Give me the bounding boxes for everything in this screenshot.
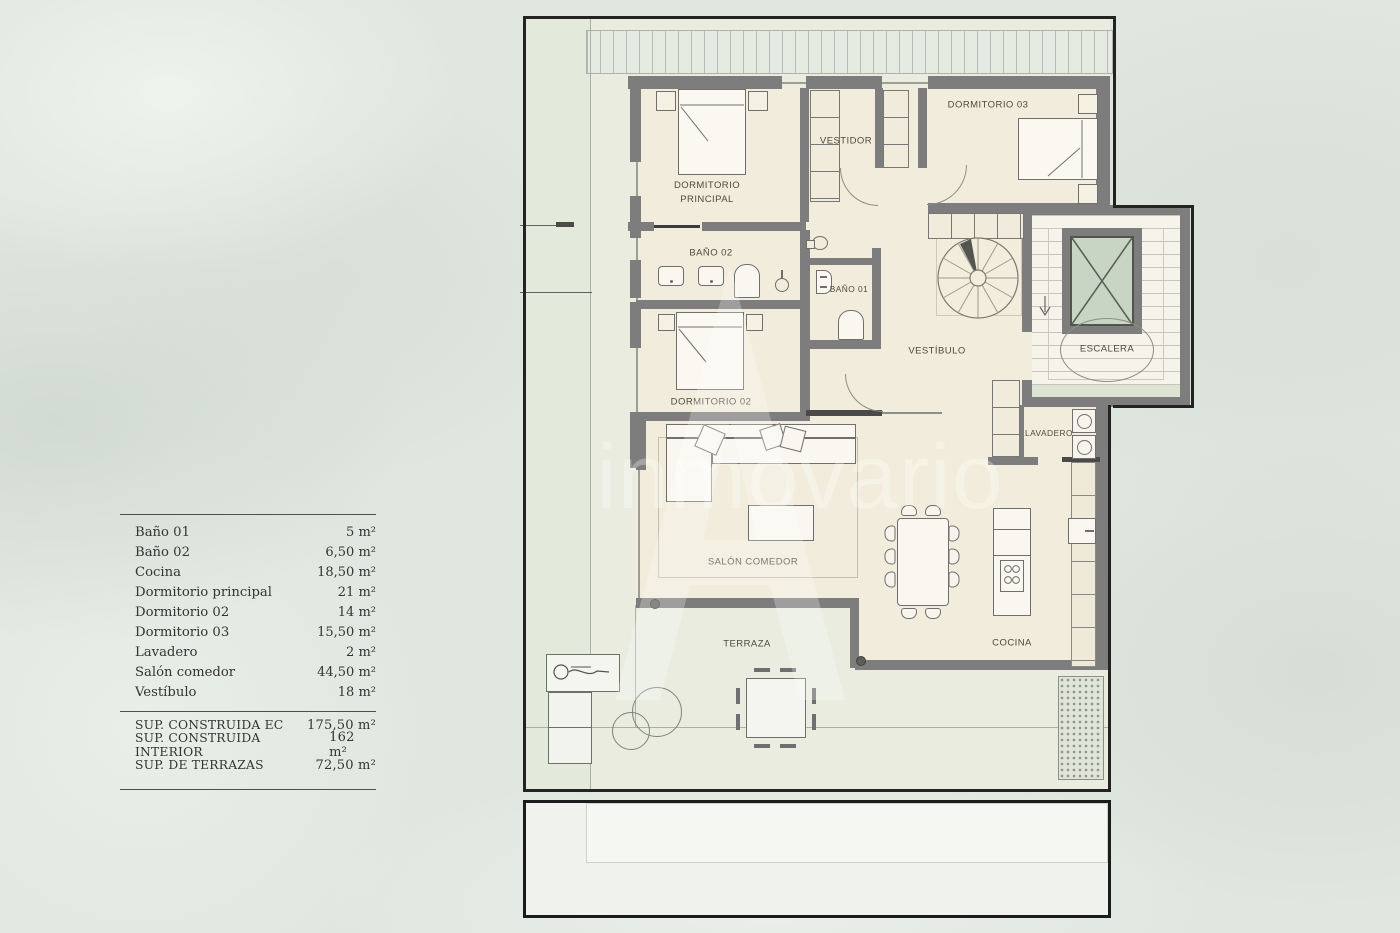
legend-row: Baño 026,50 m² xyxy=(120,542,376,562)
room-area: 18,50 m² xyxy=(317,565,376,580)
plot-border xyxy=(1113,405,1194,408)
room-area: 18 m² xyxy=(338,685,376,700)
wall-segment xyxy=(636,300,808,309)
room-label-dormitorio-02: DORMITORIO 02 xyxy=(671,397,752,408)
kitchen-cabinets xyxy=(1071,462,1096,667)
plot-border xyxy=(523,16,526,792)
column-dot xyxy=(650,599,660,609)
room-name: Cocina xyxy=(135,565,181,580)
legend-row: Lavadero2 m² xyxy=(120,642,376,662)
room-label-vestibulo: VESTÍBULO xyxy=(908,346,965,357)
room-label-dormitorio-principal: DORMITORIOPRINCIPAL xyxy=(674,179,740,207)
window-glazing xyxy=(882,412,942,414)
page: Baño 015 m² Baño 026,50 m² Cocina18,50 m… xyxy=(0,0,1400,933)
room-name: Dormitorio principal xyxy=(135,585,272,600)
room-area: 5 m² xyxy=(346,525,376,540)
wall-segment xyxy=(918,88,927,168)
shower-icon xyxy=(838,310,864,340)
door-opening xyxy=(1022,332,1032,380)
coffee-table-icon xyxy=(748,505,814,541)
lower-plot-block xyxy=(523,800,1111,918)
planter-icon xyxy=(1058,676,1104,780)
bed-icon xyxy=(1018,118,1098,180)
legend-row: Vestíbulo18 m² xyxy=(120,682,376,702)
room-area: 2 m² xyxy=(346,645,376,660)
lower-plot-inner xyxy=(586,803,1108,863)
bed-icon xyxy=(676,312,744,390)
room-area: 14 m² xyxy=(338,605,376,620)
pergola-slats xyxy=(586,30,1113,74)
legend-row: Dormitorio 0315,50 m² xyxy=(120,622,376,642)
wall-segment xyxy=(988,457,1038,465)
room-name: Baño 02 xyxy=(135,545,190,560)
room-label-bano-01: BAÑO 01 xyxy=(830,284,869,294)
plot-border xyxy=(1113,16,1116,208)
room-name: Salón comedor xyxy=(135,665,235,680)
label-line: PRINCIPAL xyxy=(680,194,734,205)
nightstand-icon xyxy=(748,91,768,111)
total-area: 72,50 m² xyxy=(316,758,377,773)
dining-table-icon xyxy=(897,518,949,606)
window-leader-line xyxy=(520,292,592,293)
washer-icon xyxy=(1072,435,1096,459)
nightstand-icon xyxy=(658,314,675,331)
total-area: 162 m² xyxy=(329,730,376,760)
wall-segment xyxy=(875,88,883,168)
room-label-vestidor: VESTIDOR xyxy=(820,136,872,147)
chair-icon xyxy=(901,505,917,516)
wall-pier xyxy=(636,420,646,470)
label-line: DORMITORIO xyxy=(674,180,740,191)
legend-total-row: SUP. DE TERRAZAS72,50 m² xyxy=(120,755,376,775)
room-label-terraza: TERRAZA xyxy=(723,639,771,650)
outdoor-chair-icon xyxy=(812,688,816,704)
elevator-icon xyxy=(1070,236,1134,326)
total-name: SUP. CONSTRUIDA EC xyxy=(135,718,283,732)
wall-pier xyxy=(630,86,641,162)
wall-segment xyxy=(628,76,782,89)
wall-segment xyxy=(636,598,858,608)
room-label-escalera: ESCALERA xyxy=(1080,344,1134,355)
wall-segment xyxy=(800,88,809,222)
plant-icon xyxy=(612,712,650,750)
bed-icon xyxy=(678,89,746,175)
floor-plan: DORMITORIOPRINCIPAL VESTIDOR DORMITORIO … xyxy=(0,0,1400,933)
room-area: 21 m² xyxy=(338,585,376,600)
room-label-cocina: COCINA xyxy=(992,638,1032,649)
plot-border xyxy=(1108,405,1111,792)
room-area: 15,50 m² xyxy=(317,625,376,640)
outdoor-chair-icon xyxy=(754,744,770,748)
legend-row: Baño 015 m² xyxy=(120,522,376,542)
room-name: Vestíbulo xyxy=(135,685,197,700)
wall-segment xyxy=(800,230,810,412)
shower-icon xyxy=(734,264,760,298)
plot-border xyxy=(523,789,1111,792)
room-label-lavadero: LAVADERO xyxy=(1025,428,1073,438)
wall-segment xyxy=(806,76,882,89)
legend-row: Salón comedor44,50 m² xyxy=(120,662,376,682)
wall-segment xyxy=(802,340,881,349)
room-name: Lavadero xyxy=(135,645,197,660)
legend-row: Cocina18,50 m² xyxy=(120,562,376,582)
nightstand-icon xyxy=(746,314,763,331)
chair-icon xyxy=(885,572,896,588)
pedestal-sink-icon xyxy=(775,278,789,292)
room-label-bano-02: BAÑO 02 xyxy=(689,248,732,259)
total-name: SUP. DE TERRAZAS xyxy=(135,758,264,772)
wall-segment xyxy=(702,222,806,231)
lounge-chair-icon xyxy=(546,654,620,692)
faucet-icon xyxy=(781,270,783,279)
room-area: 44,50 m² xyxy=(317,665,376,680)
room-name: Dormitorio 02 xyxy=(135,605,229,620)
nightstand-icon xyxy=(656,91,676,111)
room-area: 6,50 m² xyxy=(325,545,376,560)
wall-segment xyxy=(1096,405,1108,667)
outdoor-chair-icon xyxy=(754,668,770,672)
wardrobe-cells xyxy=(883,90,909,168)
legend-divider xyxy=(120,711,376,712)
terrace-mat-icon xyxy=(548,692,592,764)
outdoor-chair-icon xyxy=(736,688,740,704)
legend-row: Dormitorio 0214 m² xyxy=(120,602,376,622)
chair-icon xyxy=(885,549,896,565)
column-dot xyxy=(856,656,866,666)
plot-border xyxy=(523,16,1116,19)
sliding-door xyxy=(654,225,700,228)
outdoor-chair-icon xyxy=(780,744,796,748)
cooktop-icon xyxy=(1000,560,1024,592)
nightstand-icon xyxy=(1078,184,1098,204)
outdoor-chair-icon xyxy=(812,714,816,730)
nightstand-icon xyxy=(1078,94,1098,114)
window-marker xyxy=(556,222,574,227)
toilet-tank-icon xyxy=(806,240,815,249)
room-name: Dormitorio 03 xyxy=(135,625,229,640)
wall-segment xyxy=(628,222,654,231)
sink-icon xyxy=(698,266,724,286)
plot-border xyxy=(1113,205,1194,208)
legend-row: Dormitorio principal21 m² xyxy=(120,582,376,602)
wall-segment xyxy=(872,248,881,342)
outdoor-chair-icon xyxy=(780,668,796,672)
appliance-icon xyxy=(1068,518,1096,544)
sliding-door xyxy=(806,410,882,416)
chair-icon xyxy=(885,526,896,542)
legend-total-row: SUP. CONSTRUIDA INTERIOR162 m² xyxy=(120,735,376,755)
total-name: SUP. CONSTRUIDA INTERIOR xyxy=(135,731,329,759)
wall-segment xyxy=(928,76,1106,89)
room-label-dormitorio-03: DORMITORIO 03 xyxy=(948,100,1029,111)
wall-pier xyxy=(630,260,641,298)
wall-segment xyxy=(1096,76,1110,208)
area-legend: Baño 015 m² Baño 026,50 m² Cocina18,50 m… xyxy=(120,514,376,790)
washer-icon xyxy=(1072,409,1096,433)
outdoor-table-icon xyxy=(746,678,806,738)
stair-landing xyxy=(1032,385,1180,397)
direction-arrow-icon xyxy=(1036,296,1054,318)
chair-icon xyxy=(925,505,941,516)
wall-pier xyxy=(630,196,641,238)
wall-segment xyxy=(810,258,872,265)
room-name: Baño 01 xyxy=(135,525,190,540)
sink-icon xyxy=(658,266,684,286)
room-label-salon-comedor: SALÓN COMEDOR xyxy=(708,557,798,568)
wardrobe-cells xyxy=(992,380,1020,457)
plot-border xyxy=(1191,205,1194,408)
wall-segment xyxy=(636,412,810,421)
spiral-stair-icon xyxy=(936,236,1020,320)
outdoor-chair-icon xyxy=(736,714,740,730)
